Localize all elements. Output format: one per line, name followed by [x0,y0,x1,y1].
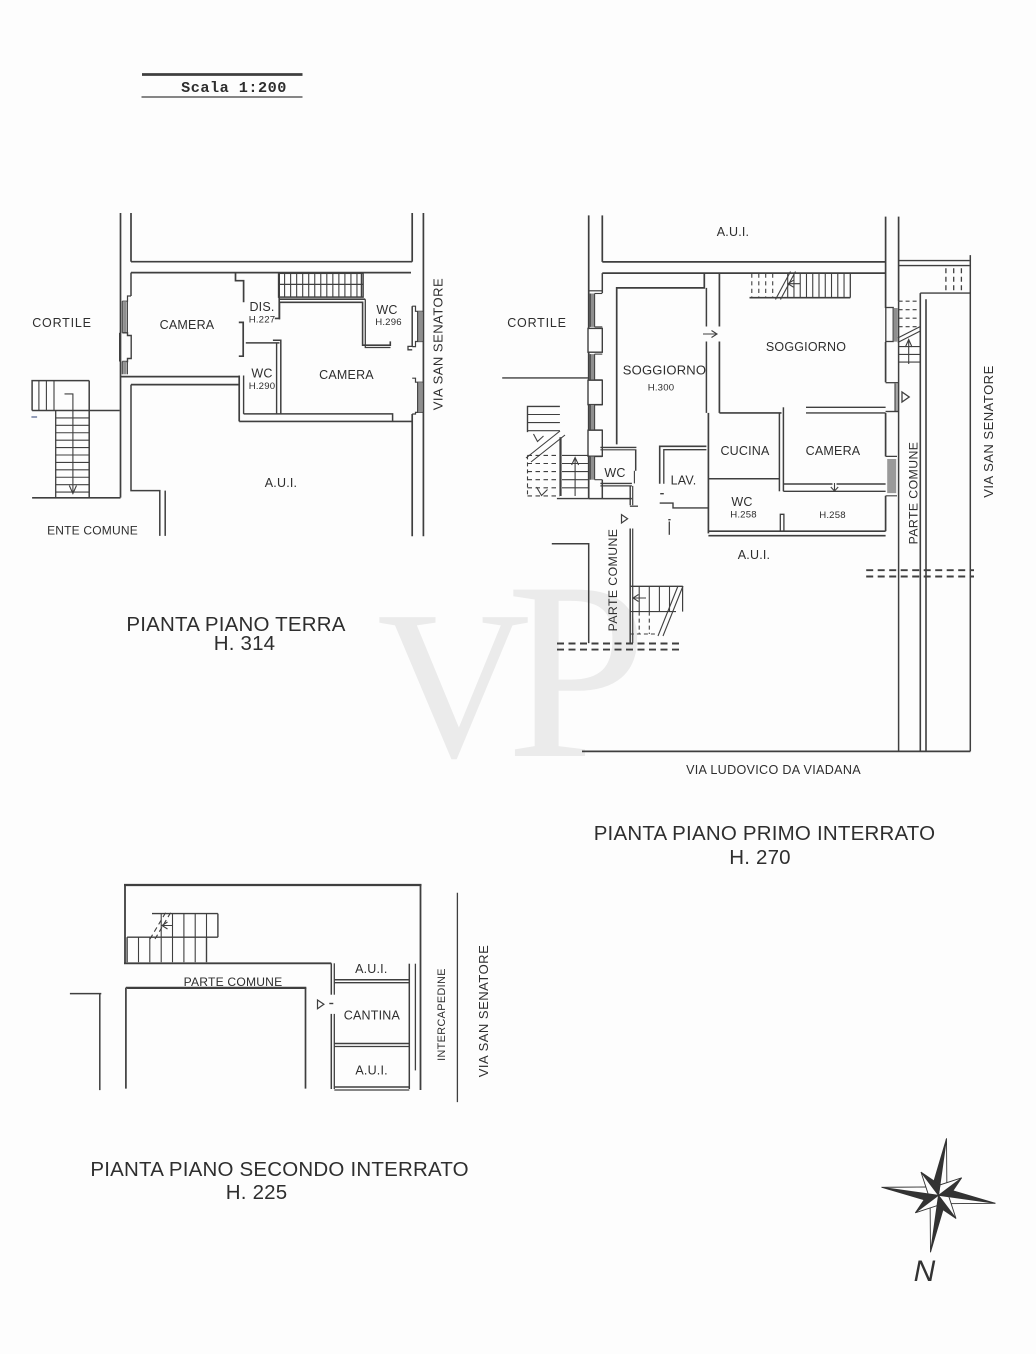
svg-text:VIA SAN SENATORE: VIA SAN SENATORE [431,278,446,411]
svg-text:PARTE COMUNE: PARTE COMUNE [907,442,921,545]
svg-text:A.U.I.: A.U.I. [717,225,749,239]
svg-text:CAMERA: CAMERA [160,318,215,332]
svg-text:H. 225: H. 225 [226,1181,288,1204]
svg-text:INTERCAPEDINE: INTERCAPEDINE [436,968,448,1061]
svg-text:LAV.: LAV. [671,474,697,488]
svg-text:Scala 1:200: Scala 1:200 [181,79,287,97]
svg-text:WC: WC [251,367,272,381]
svg-text:WC: WC [376,303,397,317]
svg-text:VIA SAN SENATORE: VIA SAN SENATORE [476,945,491,1078]
svg-text:PIANTA PIANO PRIMO INTERRATO: PIANTA PIANO PRIMO INTERRATO [594,822,936,845]
svg-text:PARTE COMUNE: PARTE COMUNE [606,529,620,632]
svg-text:H.296: H.296 [375,317,402,328]
svg-text:CORTILE: CORTILE [507,316,567,330]
svg-text:A.U.I.: A.U.I. [355,962,387,976]
svg-text:H.300: H.300 [648,383,675,394]
svg-text:WC: WC [731,495,752,509]
svg-text:H.258: H.258 [730,510,757,521]
svg-text:CANTINA: CANTINA [344,1009,401,1023]
svg-text:A.U.I.: A.U.I. [265,476,297,490]
svg-text:VIA LUDOVICO DA VIADANA: VIA LUDOVICO DA VIADANA [686,763,861,777]
svg-text:ENTE COMUNE: ENTE COMUNE [47,524,138,538]
svg-text:CAMERA: CAMERA [319,368,374,382]
svg-text:A.U.I.: A.U.I. [738,548,770,562]
svg-text:CAMERA: CAMERA [806,444,861,458]
svg-text:VIA SAN SENATORE: VIA SAN SENATORE [981,365,996,498]
svg-text:N: N [914,1255,936,1288]
svg-text:WC: WC [604,466,625,480]
svg-text:H.227: H.227 [249,315,276,326]
svg-text:H. 270: H. 270 [729,846,791,869]
svg-text:H.258: H.258 [819,510,846,521]
svg-text:CORTILE: CORTILE [32,316,92,330]
svg-text:H. 314: H. 314 [214,632,276,655]
svg-text:SOGGIORNO: SOGGIORNO [766,340,846,354]
svg-text:H.290: H.290 [249,381,276,392]
svg-text:CUCINA: CUCINA [720,444,770,458]
svg-text:PIANTA PIANO SECONDO INTERRATO: PIANTA PIANO SECONDO INTERRATO [90,1158,468,1181]
svg-text:SOGGIORNO: SOGGIORNO [623,363,706,378]
svg-text:A.U.I.: A.U.I. [355,1064,387,1078]
svg-text:P: P [506,530,647,811]
svg-text:DIS.: DIS. [249,300,274,314]
